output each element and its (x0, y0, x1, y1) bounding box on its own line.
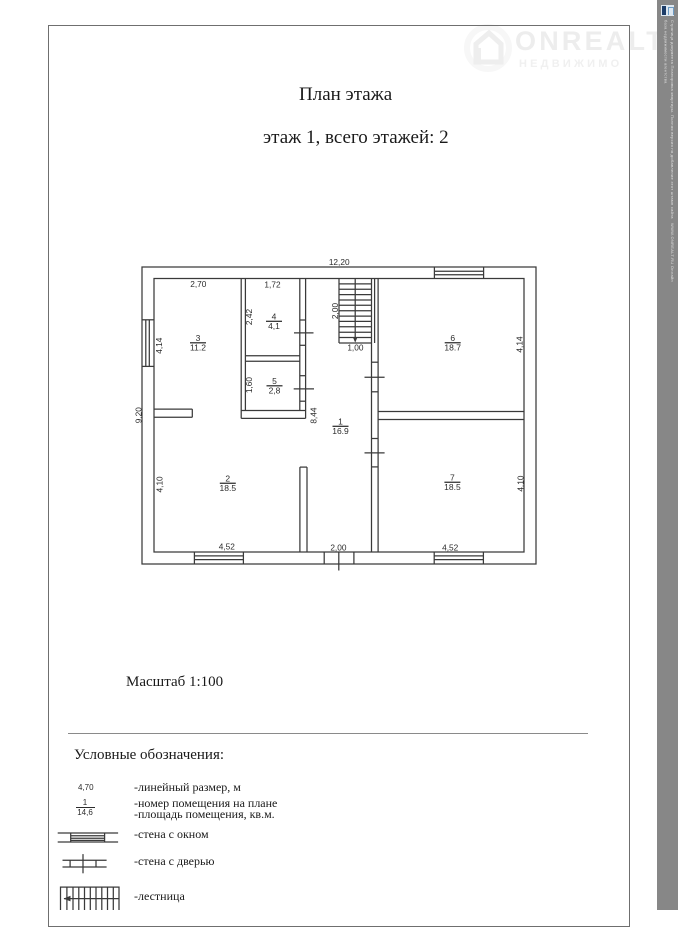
svg-text:2,00: 2,00 (330, 303, 340, 320)
svg-text:1,72: 1,72 (264, 280, 281, 290)
svg-text:4,1: 4,1 (268, 321, 280, 331)
svg-text:1,00: 1,00 (347, 343, 364, 353)
svg-text:18.5: 18.5 (444, 482, 461, 492)
svg-text:2,00: 2,00 (330, 543, 347, 553)
svg-text:2: 2 (225, 474, 230, 484)
svg-text:2,70: 2,70 (190, 279, 207, 289)
svg-text:2,42: 2,42 (244, 309, 254, 326)
svg-text:4: 4 (272, 312, 277, 322)
svg-text:9,20: 9,20 (134, 407, 144, 424)
svg-text:1: 1 (338, 417, 343, 427)
svg-text:7: 7 (450, 473, 455, 483)
svg-text:12,20: 12,20 (329, 257, 350, 267)
svg-text:6: 6 (450, 333, 455, 343)
svg-text:3: 3 (196, 333, 201, 343)
svg-text:11.2: 11.2 (190, 343, 206, 353)
svg-text:18.5: 18.5 (220, 483, 237, 493)
svg-text:1,60: 1,60 (244, 377, 254, 394)
svg-text:16.9: 16.9 (332, 426, 349, 436)
svg-text:8,44: 8,44 (309, 407, 319, 424)
svg-text:4,10: 4,10 (515, 475, 525, 492)
svg-text:2,8: 2,8 (269, 386, 281, 396)
svg-text:4,52: 4,52 (219, 542, 236, 552)
svg-text:4,52: 4,52 (442, 543, 459, 553)
svg-text:4,10: 4,10 (155, 476, 165, 493)
svg-text:5: 5 (272, 376, 277, 386)
svg-text:4,14: 4,14 (154, 337, 164, 354)
svg-text:18.7: 18.7 (444, 343, 461, 353)
svg-text:4,14: 4,14 (515, 336, 525, 353)
